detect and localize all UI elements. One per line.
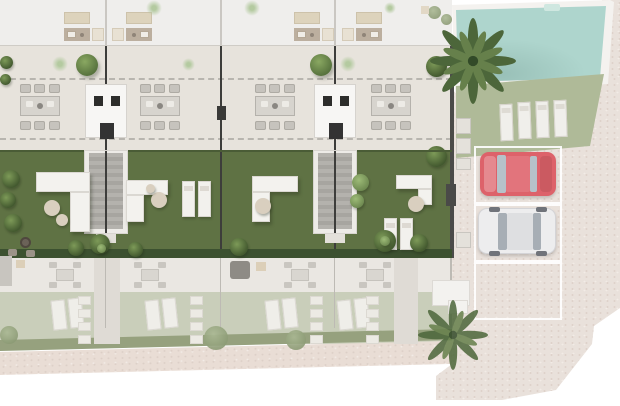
roof-edge [0,45,452,46]
gate [217,106,226,120]
stepping-stone [310,322,323,331]
stepping-stone [366,309,379,318]
pouf [151,192,167,208]
dining-chair [169,84,180,93]
windshield [497,155,506,193]
outdoor-kitchen-faded [230,261,250,279]
stepping-stone-column [366,296,379,344]
patio-chair [49,262,57,268]
bowl [388,103,394,109]
sun-lounger [182,181,195,217]
unit-fence-faded [334,258,335,328]
stepping-stone [190,309,203,318]
dining-chair [385,84,396,93]
plate [282,101,289,107]
light-plant [52,56,68,72]
light-plant [182,58,195,71]
unit-fence-faded [105,258,106,328]
dining-chair [284,84,295,93]
planter-pot [421,6,429,14]
bowl [37,103,43,109]
kitchen-sofa [294,12,320,24]
patio-chair [134,282,142,288]
tree [76,54,98,76]
poolside-lounger [553,100,567,137]
pool-steps [544,4,560,11]
plate [261,101,268,107]
dining-chair [269,84,280,93]
patio-dining-set [358,262,392,288]
walkway [394,258,418,344]
stepping-stone-column [78,296,91,344]
sink [370,31,379,38]
dining-table-group [20,84,60,130]
fire-pit-chair [8,249,17,256]
garden-edge [0,150,452,152]
bush [230,238,248,256]
bush [0,56,13,69]
dining-table-group [255,84,295,130]
dining-chair [400,121,411,130]
sun-lounger-faded [50,299,67,330]
patio-chair [158,282,166,288]
light-plant [244,0,260,16]
entry-module [314,84,356,138]
dining-chair [49,121,60,130]
dining-chair [255,121,266,130]
dining-chair [371,84,382,93]
fire-pit [20,237,31,248]
stepping-stone [190,296,203,305]
bush [4,214,22,232]
plate [398,101,405,107]
sun-lounger-faded [281,297,298,328]
sun-lounger [198,181,211,217]
car-roof [506,156,530,192]
poolside-lounger [499,104,513,141]
kitchen-sofa [356,12,382,24]
patio-table [291,269,309,281]
patio-chair [134,262,142,268]
pouf [408,196,424,212]
unit-fence [220,46,222,150]
dining-table-group [371,84,411,130]
unit-fence-faded [220,258,221,328]
stepping-stone [310,296,323,305]
side-table [342,28,354,41]
kitchen-sofa [64,12,90,24]
bush [410,234,428,252]
light-plant [146,0,162,16]
pouf [255,198,271,214]
car-white [478,208,556,254]
stepping-stone [78,322,91,331]
side-table [92,28,104,41]
stair-divider [334,151,336,233]
sink [67,31,76,38]
stepping-stone [366,335,379,344]
burner [362,33,366,37]
pouf [146,184,155,193]
plate [146,101,153,107]
site-plan [0,0,620,406]
bush [380,236,390,246]
tree [310,54,332,76]
door-mat [340,96,349,106]
bush [128,242,143,257]
unit-fence [220,150,222,250]
patio-table [56,269,74,281]
pouf [56,214,68,226]
patio-item [0,256,12,286]
patio-chair [158,262,166,268]
car-trunk [540,156,552,192]
patio-chair [359,282,367,288]
utility-unit [456,138,471,154]
l-sofa-vertical [126,195,144,222]
sink [297,31,306,38]
patio-dining-set [283,262,317,288]
gate [446,184,456,206]
stepping-stone [78,335,91,344]
wheel [489,207,500,212]
stepping-stone [310,309,323,318]
wheel [536,207,547,212]
staircase [313,150,357,234]
sun-lounger-faded [161,297,178,328]
sun-lounger-faded [264,299,281,330]
door-mat [323,96,332,106]
utility-unit [456,158,471,170]
sun-lounger-faded [144,299,161,330]
palm-leaves [430,18,516,104]
patio-item [16,260,25,268]
poolside-lounger [517,102,531,139]
stepping-stone [78,309,91,318]
entry-stub [100,123,114,139]
plate [167,101,174,107]
roof-kitchen-set [294,12,334,41]
stepping-stone [78,296,91,305]
plate [26,101,33,107]
stepping-stone-column [310,296,323,344]
roof-kitchen-set [64,12,104,41]
patio-chair [383,282,391,288]
l-sofa-horizontal [36,172,90,192]
rear-window [533,213,541,250]
dining-chair [154,121,165,130]
light-plant [384,2,396,14]
utility-unit [456,232,471,248]
l-sofa-vertical [70,192,90,232]
bowl [157,103,163,109]
bush [0,192,16,208]
tree-faded [204,326,228,350]
patio-chair [284,262,292,268]
roof-kitchen-set [112,12,152,41]
dining-chair [34,121,45,130]
patio-table [141,269,159,281]
palm-tree [418,300,488,370]
side-table [322,28,334,41]
roof-divider [105,0,107,46]
stepping-stone [190,335,203,344]
roof-divider [220,0,222,46]
stair-divider [105,151,107,233]
patio-item [256,262,266,271]
bush [2,170,20,188]
stepping-stone [366,296,379,305]
patio-chair [73,262,81,268]
dining-chair [34,84,45,93]
tree-faded [0,326,18,344]
sink [140,31,149,38]
stepping-stone-column [190,296,203,344]
patio-chair [49,282,57,288]
awning-dashed-line [0,138,452,140]
car-hood [484,156,496,192]
fire-pit-chair [26,250,35,257]
dining-chair [169,121,180,130]
pouf [44,200,60,216]
walkway [94,258,120,344]
side-table [112,28,124,41]
door-mat [111,96,120,106]
bush [68,240,84,256]
patio-chair [308,262,316,268]
patio-chair [359,262,367,268]
patio-dining-set [133,262,167,288]
awning-dashed-line [0,78,452,80]
wheel [536,251,547,256]
dining-chair [49,84,60,93]
roof-divider [334,0,336,46]
bowl [272,103,278,109]
roof-kitchen-set [342,12,382,41]
dining-chair [385,121,396,130]
patio-chair [73,282,81,288]
dining-table-group [140,84,180,130]
sun-lounger-faded [336,299,353,330]
rear-window [530,156,537,192]
stepping-stone [366,322,379,331]
tree-faded [286,330,306,350]
dining-chair [20,121,31,130]
bush [352,174,369,191]
car-roof [507,213,533,250]
dining-chair [154,84,165,93]
burner [310,33,314,37]
utility-unit [456,118,471,134]
dining-chair [20,84,31,93]
patio-chair [284,282,292,288]
car-red [480,152,556,196]
staircase [84,150,128,234]
patio-table [366,269,384,281]
plate [47,101,54,107]
dining-chair [140,84,151,93]
stepping-stone [310,335,323,344]
burner [132,33,136,37]
dining-chair [140,121,151,130]
l-sofa-horizontal [252,176,298,192]
plate [377,101,384,107]
dining-chair [284,121,295,130]
windshield [498,213,507,250]
entry-stub [329,123,343,139]
wheel [489,251,500,256]
bush [350,194,364,208]
bush [0,74,11,85]
patio-chair [383,262,391,268]
light-plant [340,56,356,72]
dining-chair [371,121,382,130]
dining-chair [400,84,411,93]
l-sofa-horizontal [396,175,432,189]
stair-landing [325,234,345,243]
patio-dining-set [48,262,82,288]
bush [97,244,106,253]
dining-chair [269,121,280,130]
entry-module [85,84,127,138]
palm-tree [430,18,516,104]
burner [80,33,84,37]
door-mat [94,96,103,106]
stepping-stone [190,322,203,331]
dining-chair [255,84,266,93]
poolside-lounger [535,101,549,138]
patio-chair [308,282,316,288]
palm-leaves [418,300,488,370]
